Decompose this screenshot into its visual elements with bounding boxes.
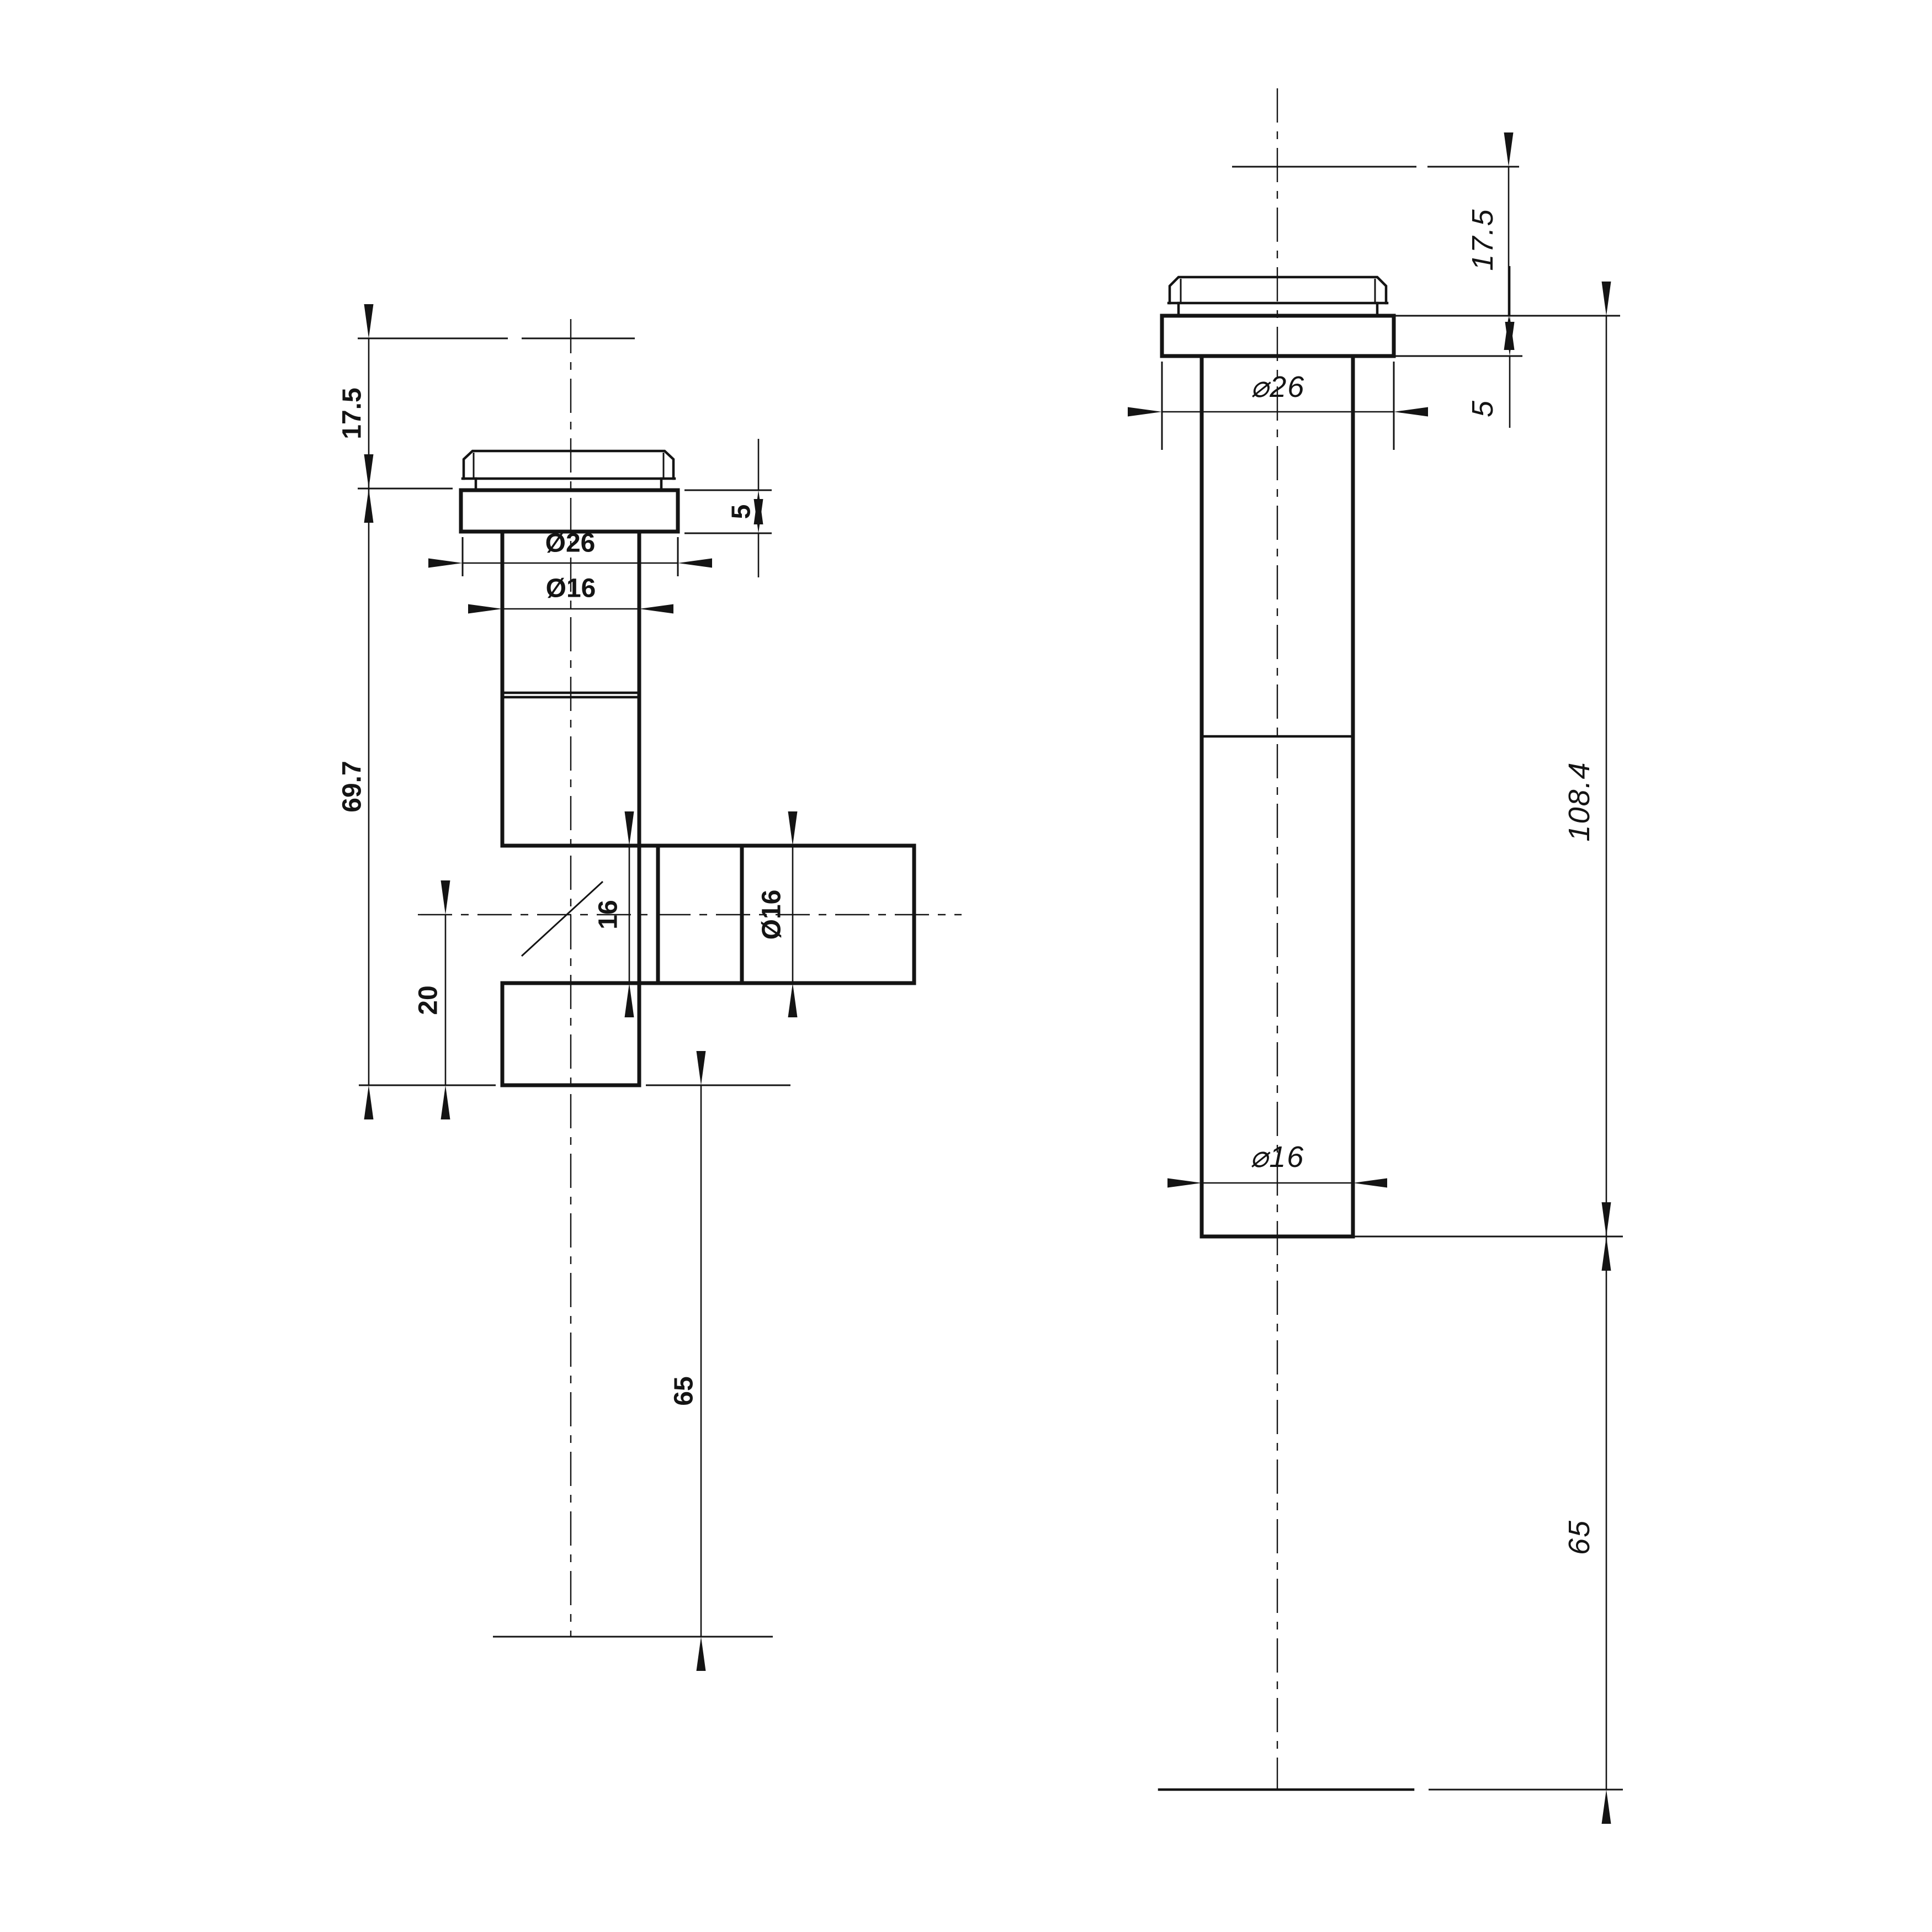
side-dim-65-label: 65	[1563, 1520, 1596, 1555]
front-view: 17.5 69.7 5 Ø26 Ø16 16 Ø16 20 65	[338, 319, 962, 1637]
front-dim-16-stem-label: Ø16	[546, 574, 596, 603]
side-dim-26-label: ⌀26	[1251, 370, 1305, 404]
front-cap-outline	[463, 451, 675, 490]
front-dim-20-label: 20	[414, 985, 443, 1015]
cad-drawing-canvas: 17.5 69.7 5 Ø26 Ø16 16 Ø16 20 65	[0, 0, 1932, 1932]
side-dim-5-label: 5	[1466, 400, 1499, 417]
side-dim-16-label: ⌀16	[1250, 1140, 1305, 1174]
front-dim-16-branch-label: Ø16	[757, 890, 787, 940]
front-dim-5-label: 5	[727, 505, 756, 519]
front-dim-69-7-label: 69.7	[338, 761, 367, 812]
drawing-sheet: { "page": { "background": "#ffffff", "li…	[0, 0, 1932, 1932]
front-dim-65-label: 65	[670, 1376, 699, 1405]
front-dim-16-bore-label: 16	[594, 900, 623, 929]
side-dim-17-5-label: 17.5	[1466, 208, 1499, 270]
side-view: 17.5 5 ⌀26 108.4 ⌀16 65	[1159, 88, 1623, 1790]
front-collar-outline	[461, 490, 678, 532]
front-section-slash	[522, 882, 603, 956]
front-dim-17-5-label: 17.5	[338, 388, 367, 439]
side-dim-108-4-label: 108.4	[1563, 761, 1596, 841]
front-dim-26-label: Ø26	[545, 529, 596, 558]
